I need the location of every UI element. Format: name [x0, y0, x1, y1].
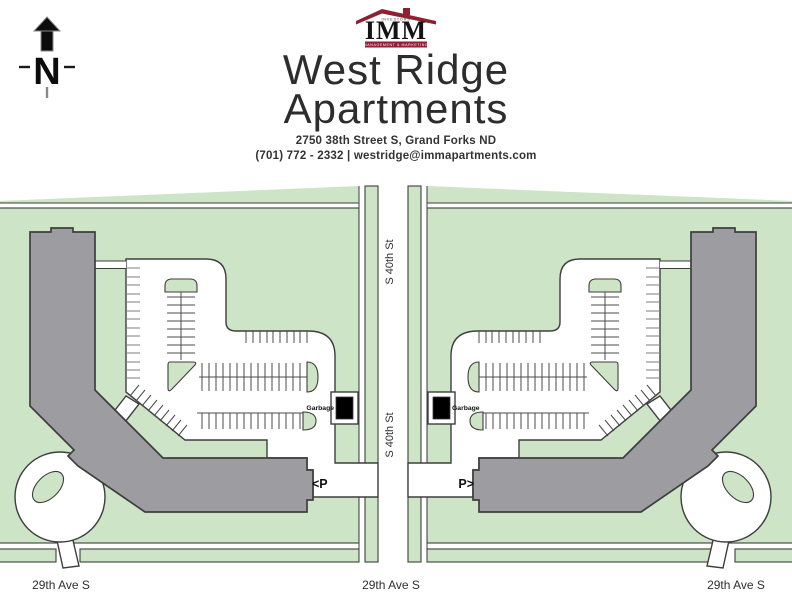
- island-mushroom-cap: [165, 279, 197, 292]
- street-label-29th-center: 29th Ave S: [362, 578, 420, 592]
- boulevard-strip: [735, 549, 792, 562]
- parking-entry-label-right: P>: [458, 477, 474, 491]
- garbage-label-left: Garbage: [306, 405, 334, 412]
- street-label-29th-left: 29th Ave S: [32, 578, 90, 592]
- garbage-dumpster: [336, 397, 353, 419]
- boulevard-strip: [80, 549, 359, 562]
- title-line1: West Ridge: [0, 50, 792, 89]
- street-label-s40th-lower: S 40th St: [384, 412, 396, 457]
- title-line2: Apartments: [0, 89, 792, 128]
- imm-logo-icon: INVESTORS IMM MANAGEMENT & MARKETING: [348, 5, 444, 51]
- address-line: 2750 38th Street S, Grand Forks ND: [0, 135, 792, 147]
- boulevard-strip-west: [365, 186, 378, 562]
- boulevard-strip: [0, 549, 56, 562]
- parking-entry-label-left: <P: [312, 477, 328, 491]
- boulevard-strip: [427, 549, 712, 562]
- street-label-29th-right: 29th Ave S: [707, 578, 765, 592]
- logo-name: IMM: [365, 16, 427, 45]
- walkway: [95, 261, 126, 269]
- island-capsule-middle: [307, 362, 318, 392]
- page-title: West Ridge Apartments: [0, 50, 792, 129]
- site-map-poster: N INVESTORS IMM MANAGEMENT & MARKETING W…: [0, 0, 792, 612]
- boulevard-strip-east: [408, 186, 421, 562]
- contact-line: (701) 772 - 2332 | westridge@immapartmen…: [0, 150, 792, 162]
- garbage-label-right: Garbage: [452, 405, 480, 412]
- street-label-s40th-upper: S 40th St: [384, 239, 396, 284]
- island-capsule-lower: [303, 412, 316, 430]
- site-plan: S 40th St S 40th St 29th Ave S 29th Ave …: [0, 182, 792, 612]
